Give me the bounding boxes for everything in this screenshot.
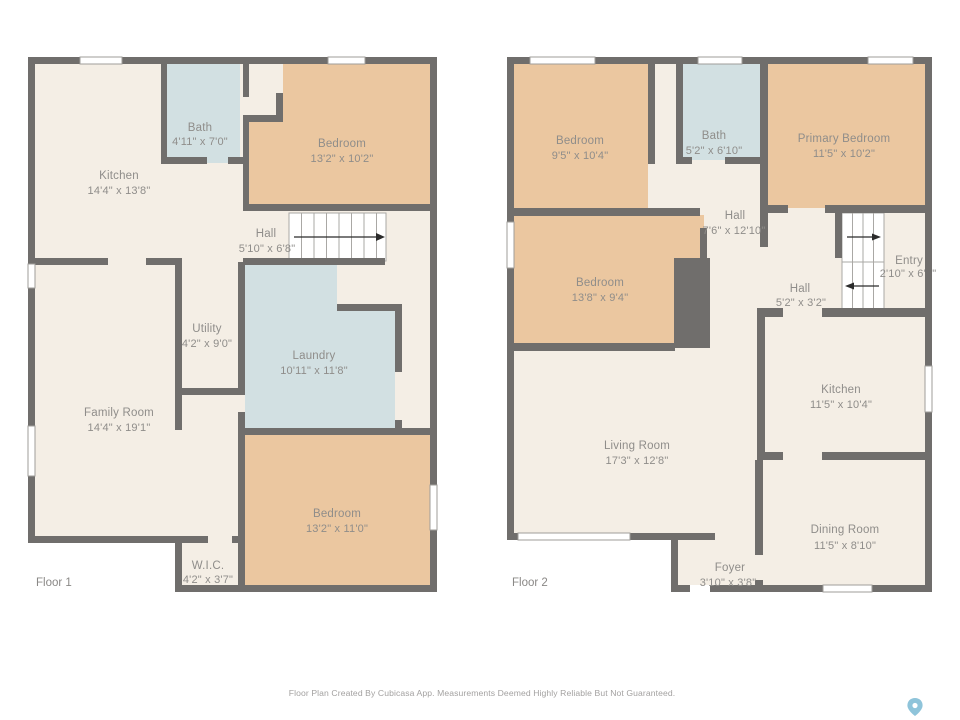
room-dims-utility-f1: 4'2" x 9'0" bbox=[182, 338, 232, 350]
map-pin-icon bbox=[907, 698, 922, 716]
room-label-hall-upper-f2: Hall bbox=[725, 210, 746, 222]
room-dims-bedroom-tl-f2: 9'5" x 10'4" bbox=[552, 150, 609, 162]
room-dims-foyer-f2: 3'10" x 3'8" bbox=[700, 577, 757, 589]
room-dims-bedroom-top-f1: 13'2" x 10'2" bbox=[311, 153, 374, 165]
room-dims-dining-room-f2: 11'5" x 8'10" bbox=[814, 540, 876, 552]
floorplan-svg: Kitchen 14'4" x 13'8" Bath 4'11" x 7'0" … bbox=[0, 0, 960, 720]
room-dims-bath-f2: 5'2" x 6'10" bbox=[686, 145, 743, 157]
room-dims-bedroom-bottom-f1: 13'2" x 11'0" bbox=[306, 523, 368, 535]
room-label-bath-f1: Bath bbox=[188, 122, 212, 134]
room-dims-hall-f1: 5'10" x 6'8" bbox=[239, 243, 296, 255]
floor2-label: Floor 2 bbox=[512, 577, 548, 589]
room-dims-bedroom2-f2: 13'8" x 9'4" bbox=[572, 292, 629, 304]
room-dims-primary-bedroom-f2: 11'5" x 10'2" bbox=[813, 148, 875, 160]
room-label-laundry-f1: Laundry bbox=[293, 350, 336, 362]
floor1-room-fills bbox=[35, 64, 430, 585]
room-label-hall-f1: Hall bbox=[256, 228, 277, 240]
room-label-kitchen-f2: Kitchen bbox=[821, 384, 861, 396]
room-label-dining-room-f2: Dining Room bbox=[811, 524, 880, 536]
room-label-living-room-f2: Living Room bbox=[604, 440, 670, 452]
floor1-stairs bbox=[289, 213, 386, 261]
room-dims-living-room-f2: 17'3" x 12'8" bbox=[606, 455, 669, 467]
room-dims-laundry-f1: 10'11" x 11'8" bbox=[280, 365, 348, 377]
room-label-bedroom-top-f1: Bedroom bbox=[318, 138, 366, 150]
room-dims-kitchen-f2: 11'5" x 10'4" bbox=[810, 399, 872, 411]
room-label-bedroom2-f2: Bedroom bbox=[576, 277, 624, 289]
floorplan-canvas: Kitchen 14'4" x 13'8" Bath 4'11" x 7'0" … bbox=[0, 0, 960, 720]
footer-disclaimer: Floor Plan Created By Cubicasa App. Meas… bbox=[289, 688, 675, 698]
room-label-hall-lower-f2: Hall bbox=[790, 283, 811, 295]
room-label-foyer-f2: Foyer bbox=[715, 562, 745, 574]
room-dims-bath-f1: 4'11" x 7'0" bbox=[172, 136, 228, 148]
room-dims-kitchen-f1: 14'4" x 13'8" bbox=[88, 185, 151, 197]
room-label-kitchen-f1: Kitchen bbox=[99, 170, 139, 182]
room-label-entry-f2: Entry bbox=[895, 255, 923, 267]
room-label-bedroom-tl-f2: Bedroom bbox=[556, 135, 604, 147]
floor2-stairs bbox=[842, 213, 884, 310]
chimney-block bbox=[674, 258, 710, 348]
room-label-primary-bedroom-f2: Primary Bedroom bbox=[798, 133, 890, 145]
floor2-plan: 2'10" x 6'9" bbox=[507, 57, 936, 592]
room-dims-hall-lower-f2: 5'2" x 3'2" bbox=[776, 297, 826, 309]
floor1-plan: Kitchen 14'4" x 13'8" Bath 4'11" x 7'0" … bbox=[28, 57, 437, 592]
room-label-wic-f1: W.I.C. bbox=[192, 560, 225, 572]
room-dims-family-room-f1: 14'4" x 19'1" bbox=[88, 422, 151, 434]
floor1-label: Floor 1 bbox=[36, 577, 72, 589]
floor1-bath-area bbox=[166, 64, 240, 163]
room-dims-hall-upper-f2: 7'6" x 12'10" bbox=[703, 225, 766, 237]
room-label-bedroom-bottom-f1: Bedroom bbox=[313, 508, 361, 520]
room-label-utility-f1: Utility bbox=[192, 323, 222, 335]
room-label-family-room-f1: Family Room bbox=[84, 407, 154, 419]
room-dims-wic-f1: 4'2" x 3'7" bbox=[183, 574, 233, 586]
room-label-bath-f2: Bath bbox=[702, 130, 726, 142]
